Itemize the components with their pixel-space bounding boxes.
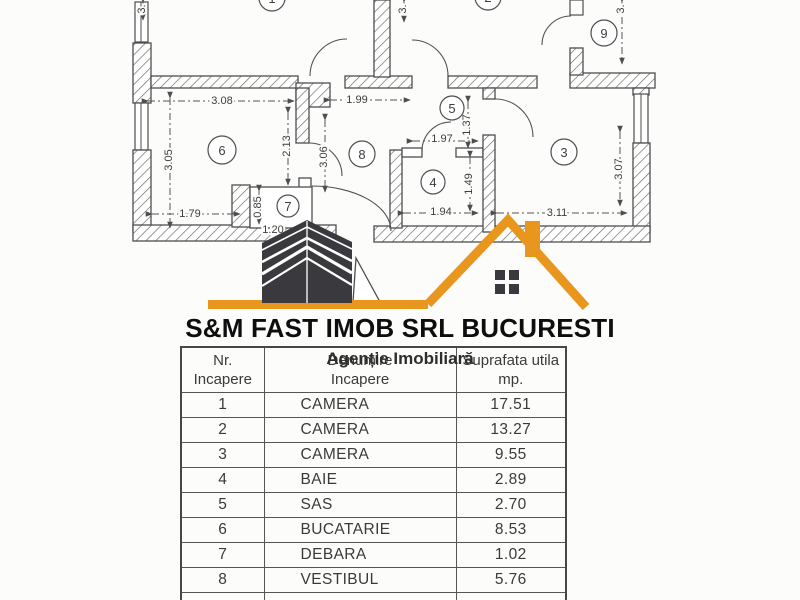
chimney-icon: [525, 221, 540, 257]
dimension-label: 3.11: [547, 207, 568, 219]
dimension-label: 3.: [136, 4, 148, 13]
header-line: mp.: [457, 370, 566, 389]
stair-triangle: [353, 258, 380, 302]
cell-nr: [181, 593, 264, 600]
cell-nr: 4: [181, 468, 264, 493]
cell-name: BAIE: [264, 468, 456, 493]
dimension-label: 2.13: [281, 135, 293, 156]
room-number-label: 7: [284, 199, 291, 214]
cell-name: CAMERA: [264, 443, 456, 468]
cell-name: SAS: [264, 493, 456, 518]
room-number-layer: 129678543: [208, 0, 617, 217]
cell-nr: 3: [181, 443, 264, 468]
table-row: 4BAIE2.89: [181, 468, 566, 493]
cell-area: 8.53: [456, 518, 566, 543]
cell-area: 2.89: [456, 468, 566, 493]
area-table-body: 1CAMERA17.512CAMERA13.273CAMERA9.554BAIE…: [181, 393, 566, 600]
room-number-label: 4: [429, 175, 436, 190]
cell-name: DEBARA: [264, 543, 456, 568]
cell-area: 13.27: [456, 418, 566, 443]
company-name: S&M FAST IMOB SRL BUCURESTI: [0, 313, 800, 344]
header-line: Nr.: [182, 351, 264, 370]
room-number-label: 9: [600, 26, 607, 41]
cell-area: 1.02: [456, 543, 566, 568]
header-line: Incapere: [182, 370, 264, 389]
dimension-label: 1.99: [346, 94, 367, 106]
table-row: 6BUCATARIE8.53: [181, 518, 566, 543]
cell-name: CAMERA: [264, 418, 456, 443]
cell-nr: 6: [181, 518, 264, 543]
table-row: 1CAMERA17.51: [181, 393, 566, 418]
room-number-label: 1: [268, 0, 275, 6]
room-number-label: 5: [448, 101, 455, 116]
agency-tagline: Agenție Imobiliară: [326, 349, 473, 369]
table-row: 2CAMERA13.27: [181, 418, 566, 443]
cell-name: [264, 593, 456, 600]
cell-area: 17.51: [456, 393, 566, 418]
dimension-label: 3.05: [163, 149, 175, 170]
cell-nr: 2: [181, 418, 264, 443]
dimension-label: 1.79: [179, 208, 200, 220]
dimension-label: 1.94: [430, 206, 451, 218]
cell-nr: 8: [181, 568, 264, 593]
scanned-listing-page: 3.081.993.052.133.061.790.851.201.971.37…: [0, 0, 800, 600]
cell-name: VESTIBUL: [264, 568, 456, 593]
walls: [133, 0, 655, 242]
table-row: 8VESTIBUL5.76: [181, 568, 566, 593]
dimension-label: 0.85: [252, 196, 264, 217]
cell-nr: 1: [181, 393, 264, 418]
room-number-label: 3: [560, 145, 567, 160]
dimension-label: 1.49: [463, 173, 475, 194]
window-icon: [495, 270, 519, 294]
table-row: 5SAS2.70: [181, 493, 566, 518]
dimension-label: 3.06: [318, 146, 330, 167]
room-area-table: Nr. Incapere Denumire Incapere Suprafata…: [180, 346, 567, 600]
room-number-label: 6: [218, 143, 225, 158]
door-arcs: [309, 16, 571, 231]
cell-nr: 5: [181, 493, 264, 518]
room-number-label: 2: [484, 0, 491, 5]
dimension-label: 3.08: [211, 95, 232, 107]
dimension-label: 3.: [615, 4, 627, 13]
cell-area: 9.55: [456, 443, 566, 468]
cell-name: CAMERA: [264, 393, 456, 418]
header-line: Incapere: [265, 370, 456, 389]
dimension-label: 3.07: [613, 158, 625, 179]
cell-nr: 7: [181, 543, 264, 568]
cell-area: [456, 593, 566, 600]
table-row: 3CAMERA9.55: [181, 443, 566, 468]
table-row: 7DEBARA1.02: [181, 543, 566, 568]
cell-name: BUCATARIE: [264, 518, 456, 543]
dimension-label: 1.37: [461, 114, 473, 135]
dimension-label: 3.: [397, 4, 409, 13]
dimension-label: 1.97: [431, 133, 452, 145]
cell-area: 2.70: [456, 493, 566, 518]
room-number-label: 8: [358, 147, 365, 162]
cell-area: 5.76: [456, 568, 566, 593]
table-row: [181, 593, 566, 600]
col-header-nr: Nr. Incapere: [181, 347, 264, 393]
